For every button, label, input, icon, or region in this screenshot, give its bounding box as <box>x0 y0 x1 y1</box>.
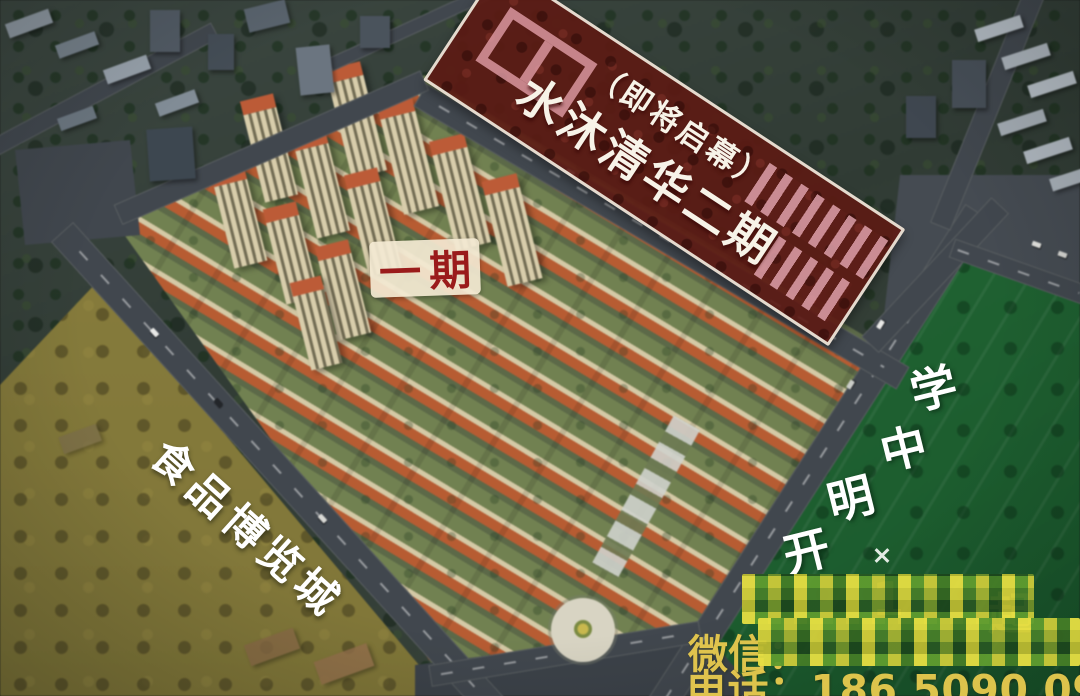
phase1-badge: 一期 <box>369 238 481 298</box>
plaza-fountain <box>574 620 592 638</box>
aerial-site-plan: （即将启幕） 水沐清华二期 一期 食品博览城 开 明 中 学 1 起 微信： 电… <box>0 0 1080 696</box>
censor-mosaic-line1 <box>742 574 1034 624</box>
city-building <box>906 96 936 138</box>
city-building <box>360 16 390 48</box>
city-building <box>146 126 196 181</box>
city-building <box>208 34 234 70</box>
city-building <box>296 44 335 95</box>
city-building <box>150 10 180 52</box>
field-cross-marking <box>872 546 892 566</box>
contact-phone-line: 电话：186 5090 0906 <box>686 656 1080 696</box>
city-building <box>952 60 986 108</box>
